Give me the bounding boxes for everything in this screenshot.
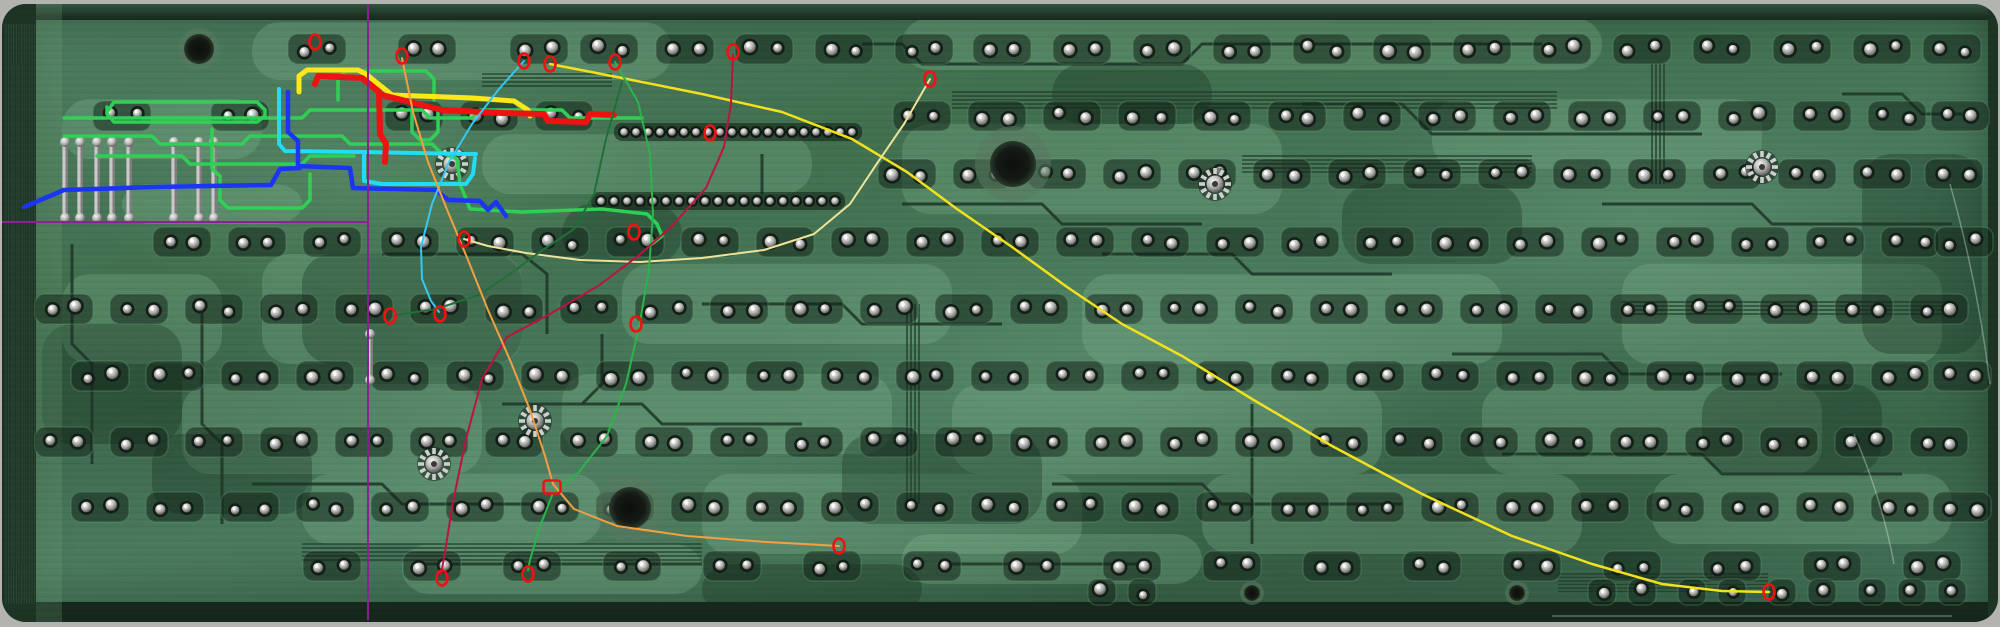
solder-joint — [645, 307, 656, 318]
solder-glint — [374, 437, 377, 441]
solder-glint — [1875, 306, 1878, 311]
solder-joint — [940, 561, 949, 570]
solder-glint — [1442, 239, 1446, 244]
solder-joint — [1863, 167, 1873, 177]
solder-joint — [1911, 561, 1923, 573]
solder-joint — [931, 43, 941, 53]
solder-joint — [513, 561, 523, 571]
connector-pad — [701, 197, 709, 205]
solder-glint — [898, 436, 901, 440]
solder-glint — [1170, 44, 1174, 49]
solder-joint — [1657, 371, 1669, 383]
solder-joint — [1636, 584, 1646, 594]
solder-joint — [260, 504, 270, 514]
pad-pocket — [1581, 227, 1639, 257]
solder-joint — [1799, 302, 1810, 313]
solder-joint — [148, 305, 159, 316]
solder-joint — [975, 434, 984, 443]
solder-glint — [1815, 171, 1819, 176]
solder-joint — [154, 369, 165, 380]
solder-glint — [1492, 44, 1495, 48]
solder-glint — [647, 308, 650, 313]
solder-glint — [746, 43, 750, 48]
solder-joint — [382, 505, 391, 514]
solder-glint — [1144, 47, 1147, 51]
pcb-photo — [0, 0, 2000, 627]
solder-glint — [931, 113, 934, 117]
solder-glint — [932, 44, 935, 48]
solder-joint — [84, 374, 93, 383]
solder-glint — [168, 238, 171, 242]
solder-glint — [1696, 302, 1700, 307]
solder-joint — [797, 440, 807, 450]
solder-glint — [937, 505, 940, 509]
solder-glint — [570, 242, 573, 246]
solder-joint — [1270, 438, 1282, 450]
solder-joint — [616, 235, 625, 244]
solder-glint — [486, 375, 489, 379]
solder-glint — [1233, 374, 1236, 379]
solder-joint — [1231, 504, 1241, 514]
solder-joint — [1283, 371, 1293, 381]
solder-joint — [913, 559, 922, 568]
solder-joint — [742, 560, 751, 569]
solder-joint — [1379, 114, 1389, 124]
solder-glint — [341, 236, 344, 240]
solder-glint — [618, 564, 621, 568]
solder-joint — [408, 501, 418, 511]
solder-glint — [196, 438, 199, 442]
solder-joint — [1646, 304, 1656, 314]
solder-glint — [870, 435, 873, 440]
solder-joint — [1156, 504, 1167, 515]
solder-glint — [1011, 45, 1014, 49]
solder-glint — [150, 306, 154, 311]
solder-joint — [1396, 305, 1405, 314]
solder-glint — [640, 562, 644, 567]
solder-glint — [1736, 504, 1739, 508]
solder-glint — [135, 110, 138, 114]
solder-joint — [298, 304, 308, 314]
solder-glint — [1972, 371, 1976, 376]
solder-glint — [1517, 241, 1520, 245]
solder-joint — [1143, 235, 1152, 244]
solder-glint — [1430, 115, 1433, 119]
solder-joint — [1838, 558, 1849, 569]
solder-glint — [1416, 560, 1419, 564]
connector-pad — [788, 128, 796, 136]
solder-glint — [1158, 114, 1161, 118]
solder-joint — [369, 303, 381, 315]
solder-glint — [1519, 168, 1522, 172]
solder-joint — [1382, 370, 1393, 381]
solder-glint — [1582, 374, 1586, 379]
solder-joint — [155, 504, 165, 514]
connector-pad — [597, 197, 605, 205]
solder-joint — [1064, 44, 1075, 55]
solder-glint — [942, 562, 945, 566]
solder-joint — [1945, 368, 1955, 378]
solder-joint — [1129, 500, 1141, 512]
solder-joint — [1462, 44, 1473, 55]
solder-joint — [1545, 434, 1557, 446]
solder-joint — [1698, 439, 1707, 448]
solder-joint — [794, 303, 806, 315]
solder-joint — [976, 113, 988, 125]
solder-glint — [1625, 306, 1628, 310]
solder-joint — [498, 435, 508, 445]
solder-glint — [1575, 307, 1579, 312]
pad-pocket — [895, 34, 953, 64]
solder-joint — [1421, 304, 1432, 315]
solder-joint — [1340, 562, 1351, 573]
solder-joint — [1194, 303, 1205, 314]
solder-joint — [1339, 171, 1350, 182]
solder-joint — [1302, 113, 1314, 125]
solder-glint — [933, 371, 936, 375]
solder-glint — [1398, 306, 1401, 310]
solder-joint — [1438, 563, 1448, 573]
solder-joint — [669, 438, 680, 449]
solder-glint — [607, 374, 611, 379]
solder-glint — [767, 237, 771, 242]
solder-joint — [1791, 168, 1801, 178]
solder-glint — [541, 560, 544, 564]
connector-pad — [812, 128, 820, 136]
solder-glint — [869, 235, 873, 240]
solder-glint — [635, 373, 639, 378]
solder-joint — [1943, 109, 1953, 119]
solder-glint — [1232, 116, 1235, 120]
solder-joint — [744, 41, 756, 53]
solder-joint — [313, 563, 323, 573]
solder-joint — [1782, 43, 1794, 55]
solder-joint — [962, 170, 974, 182]
solder-joint — [1113, 561, 1125, 573]
solder-joint — [1617, 234, 1625, 242]
solder-glint — [1704, 42, 1707, 47]
solder-glint — [1092, 45, 1095, 49]
solder-joint — [519, 436, 530, 447]
solder-glint — [1907, 586, 1910, 590]
solder-joint — [1767, 239, 1776, 248]
pad-pocket — [153, 227, 211, 257]
pin-solder-top — [75, 137, 85, 147]
solder-glint — [1308, 375, 1311, 379]
solder-glint — [1769, 241, 1772, 245]
solder-joint — [748, 304, 760, 316]
solder-joint — [1883, 502, 1895, 514]
solder-glint — [840, 563, 843, 567]
pad-pocket — [710, 427, 768, 457]
solder-glint — [1779, 590, 1782, 594]
connector-pad — [752, 128, 760, 136]
rotary-tooth — [1772, 165, 1778, 169]
solder-joint — [1797, 437, 1807, 447]
connector-pad — [805, 197, 813, 205]
solder-glint — [447, 437, 450, 441]
solder-glint — [1058, 501, 1061, 505]
solder-glint — [233, 375, 236, 379]
solder-glint — [1017, 237, 1021, 242]
solder-joint — [1947, 586, 1956, 595]
solder-glint — [1784, 45, 1788, 50]
solder-joint — [299, 47, 309, 57]
solder-glint — [1510, 374, 1513, 378]
solder-joint — [1472, 305, 1481, 314]
solder-joint — [481, 499, 491, 509]
connector-pad — [632, 128, 640, 136]
solder-glint — [1762, 506, 1765, 510]
solder-joint — [238, 238, 249, 249]
solder-glint — [1536, 373, 1539, 377]
solder-glint — [853, 48, 856, 52]
solder-joint — [1517, 166, 1527, 176]
solder-glint — [1457, 112, 1460, 117]
solder-glint — [1197, 304, 1201, 309]
solder-glint — [571, 304, 574, 308]
solder-glint — [1050, 438, 1053, 442]
solder-joint — [81, 502, 92, 513]
solder-glint — [1210, 501, 1213, 505]
pad-pocket — [521, 492, 579, 522]
solder-joint — [546, 41, 558, 53]
solder-glint — [888, 170, 892, 175]
pin-solder-top — [107, 137, 117, 147]
solder-joint — [682, 368, 691, 377]
solder-glint — [190, 238, 194, 243]
solder-glint — [978, 114, 982, 119]
connector-pad — [623, 197, 631, 205]
solder-glint — [549, 43, 553, 48]
solder-glint — [1384, 371, 1387, 375]
solder-glint — [1671, 238, 1674, 242]
solder-joint — [1923, 438, 1933, 448]
rotary-tooth — [444, 462, 450, 466]
solder-joint — [1115, 171, 1126, 182]
mounting-hole — [1509, 585, 1525, 601]
pad-pocket — [1403, 551, 1461, 581]
solder-joint — [1166, 238, 1177, 249]
connector-pad — [753, 197, 761, 205]
solder-joint — [616, 563, 625, 572]
solder-glint — [1141, 592, 1144, 595]
solder-joint — [1515, 239, 1525, 249]
solder-joint — [1805, 500, 1815, 510]
pad-pocket — [1646, 492, 1704, 522]
solder-joint — [1904, 114, 1914, 124]
solder-glint — [458, 504, 462, 509]
solder-glint — [1533, 504, 1537, 509]
solder-joint — [1639, 563, 1648, 572]
solder-glint — [1123, 436, 1127, 441]
solder-glint — [1946, 305, 1950, 310]
solder-glint — [1601, 589, 1604, 593]
solder-joint — [456, 503, 468, 515]
connector-pad — [766, 197, 774, 205]
solder-joint — [1568, 40, 1580, 52]
connector-pad — [656, 128, 664, 136]
solder-glint — [947, 308, 951, 313]
solder-glint — [1022, 303, 1025, 307]
solder-glint — [1044, 562, 1047, 566]
solder-joint — [1085, 370, 1095, 380]
solder-joint — [715, 560, 725, 570]
solder-glint — [785, 503, 789, 508]
solder-joint — [1121, 435, 1133, 447]
solder-joint — [1348, 439, 1358, 449]
solder-joint — [1816, 560, 1826, 570]
solder-glint — [1546, 46, 1549, 50]
solder-glint — [711, 503, 715, 508]
solder-joint — [1834, 501, 1846, 513]
solder-joint — [573, 435, 584, 446]
solder-glint — [1615, 565, 1618, 569]
solder-glint — [461, 371, 465, 376]
solder-joint — [568, 241, 577, 250]
solder-joint — [1122, 304, 1132, 314]
solder-glint — [1011, 504, 1014, 508]
solder-glint — [717, 562, 720, 566]
solder-joint — [981, 372, 990, 381]
board-artwork — [2, 4, 1998, 622]
solder-joint — [896, 434, 907, 445]
solder-joint — [1455, 110, 1466, 121]
solder-joint — [1508, 373, 1518, 383]
solder-glint — [1355, 109, 1359, 114]
solder-glint — [725, 307, 728, 311]
solder-joint — [558, 504, 567, 513]
solder-joint — [223, 436, 231, 444]
solder-joint — [1770, 305, 1781, 316]
solder-joint — [1923, 307, 1932, 316]
solder-glint — [618, 236, 621, 240]
solder-glint — [383, 506, 386, 510]
solder-glint — [1873, 434, 1877, 439]
solder-glint — [1141, 562, 1144, 567]
solder-joint — [1157, 113, 1166, 122]
solder-glint — [1367, 239, 1370, 243]
circuit-board — [2, 4, 1998, 622]
solder-joint — [539, 559, 549, 569]
solder-joint — [524, 307, 533, 316]
solder-glint — [1925, 440, 1928, 444]
solder-glint — [1906, 115, 1909, 119]
solder-glint — [861, 373, 864, 377]
rotary-tooth — [1760, 151, 1764, 157]
solder-joint — [339, 560, 349, 570]
solder-glint — [393, 235, 397, 240]
solder-glint — [260, 374, 263, 378]
solder-joint — [1011, 560, 1023, 572]
solder-glint — [1947, 505, 1950, 510]
connector-pad — [620, 128, 628, 136]
solder-joint — [820, 437, 829, 446]
solder-glint — [1743, 241, 1746, 245]
solder-joint — [1663, 170, 1673, 180]
solder-glint — [1623, 438, 1626, 442]
solder-joint — [947, 432, 959, 444]
solder-joint — [1135, 368, 1144, 377]
solder-joint — [1139, 591, 1147, 599]
rotary-tooth — [1760, 177, 1764, 183]
solder-glint — [1730, 46, 1733, 50]
solder-glint — [1291, 172, 1294, 177]
solder-joint — [1604, 112, 1616, 124]
solder-glint — [1252, 47, 1255, 51]
solder-joint — [123, 305, 132, 314]
solder-joint — [1805, 109, 1815, 119]
solder-glint — [240, 239, 243, 243]
solder-glint — [1068, 235, 1071, 239]
solder-joint — [1168, 42, 1180, 54]
solder-glint — [327, 44, 330, 48]
solder-joint — [1965, 110, 1977, 122]
rotary-tooth — [545, 419, 551, 423]
solder-joint — [1531, 502, 1543, 514]
pad-pocket — [1196, 492, 1254, 522]
connector-pad — [728, 128, 736, 136]
solder-glint — [1576, 440, 1579, 444]
solder-glint — [410, 44, 414, 49]
solder-glint — [696, 235, 699, 239]
solder-glint — [1547, 435, 1551, 440]
solder-joint — [194, 437, 204, 447]
connector-pad — [662, 197, 670, 205]
solder-glint — [1820, 586, 1823, 590]
solder-glint — [672, 439, 676, 444]
rotary-tooth — [1213, 168, 1217, 174]
solder-glint — [1922, 239, 1925, 243]
solder-joint — [346, 304, 356, 314]
solder-glint — [74, 437, 78, 442]
solder-joint — [1769, 440, 1779, 450]
solder-glint — [1742, 562, 1745, 566]
solder-glint — [1509, 503, 1513, 508]
solder-joint — [1218, 239, 1228, 249]
solder-glint — [797, 241, 800, 245]
solder-joint — [1428, 114, 1438, 124]
solder-joint — [1691, 234, 1702, 245]
solder-glint — [944, 234, 948, 239]
solder-glint — [1866, 45, 1870, 50]
solder-glint — [1056, 109, 1059, 113]
solder-glint — [1925, 308, 1928, 312]
solder-glint — [725, 437, 728, 441]
solder-joint — [645, 436, 657, 448]
connector-pad — [740, 197, 748, 205]
solder-joint — [869, 305, 880, 316]
rotary-tooth — [418, 462, 424, 466]
solder-joint — [1818, 585, 1828, 595]
solder-joint — [1096, 437, 1107, 448]
solder-glint — [599, 304, 602, 308]
solder-joint — [373, 436, 382, 445]
solder-glint — [1966, 171, 1969, 176]
solder-glint — [984, 500, 988, 505]
solder-glint — [1358, 374, 1362, 379]
solder-joint — [1409, 46, 1421, 58]
solder-joint — [1971, 504, 1983, 516]
solder-glint — [1060, 371, 1063, 375]
solder-glint — [844, 235, 848, 240]
solder-joint — [1352, 108, 1363, 119]
solder-joint — [1535, 372, 1545, 382]
board-edge-right — [1988, 4, 1998, 622]
solder-joint — [408, 43, 420, 55]
solder-glint — [1360, 507, 1363, 511]
pad-pocket — [1910, 427, 1968, 457]
